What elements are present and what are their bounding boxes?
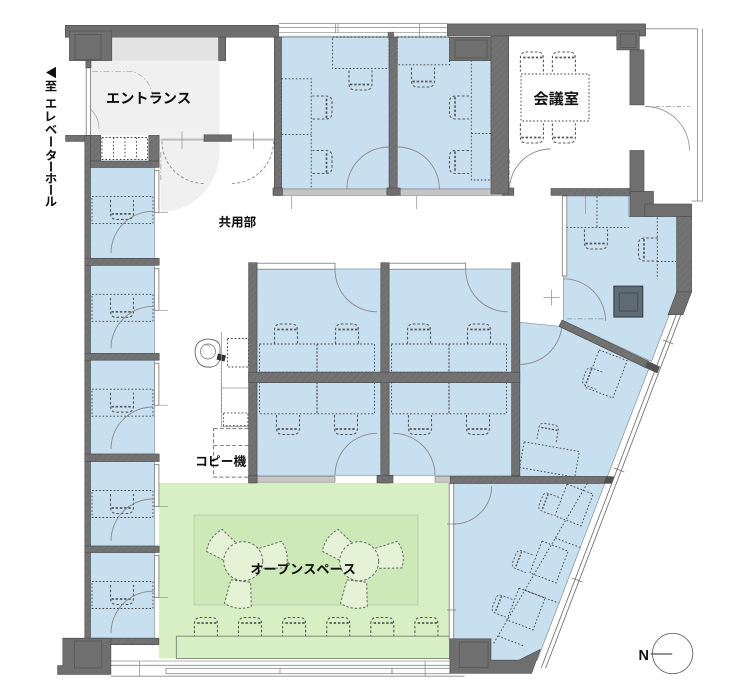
svg-text:N: N: [639, 648, 649, 664]
